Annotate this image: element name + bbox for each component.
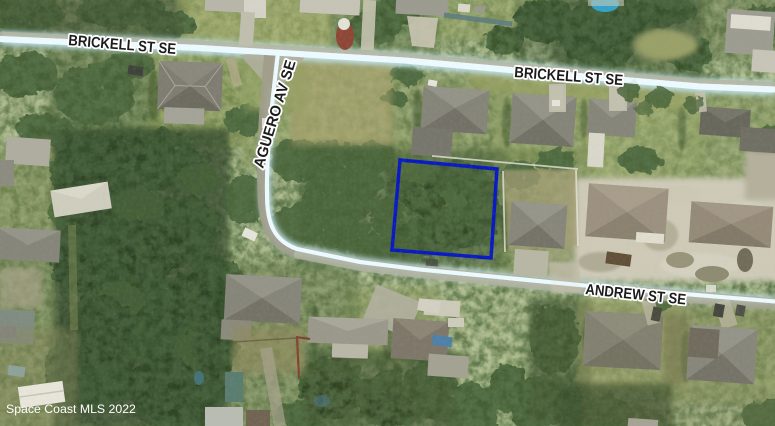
svg-text:Space Coast MLS 2022: Space Coast MLS 2022 bbox=[6, 402, 136, 416]
